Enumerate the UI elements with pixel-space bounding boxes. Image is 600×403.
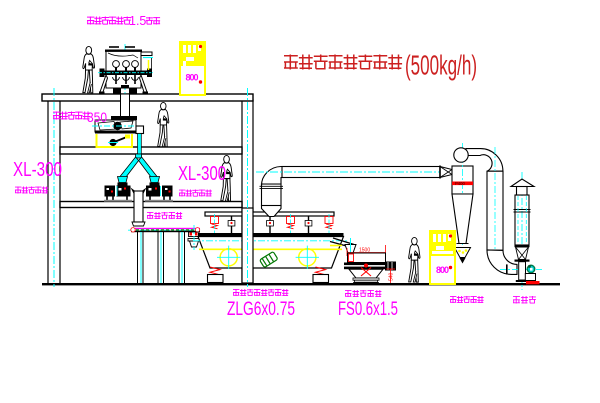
svg-text:FS0.6x1.5: FS0.6x1.5 [338,299,398,320]
svg-text:350: 350 [87,110,107,125]
svg-text:P400: P400 [455,181,465,186]
svg-text:XL-300: XL-300 [13,159,62,181]
svg-text:XL-300: XL-300 [178,163,226,185]
svg-text:800: 800 [436,265,449,275]
svg-text:ZLG6x0.75: ZLG6x0.75 [227,299,295,320]
svg-text:(500kg/h): (500kg/h) [405,50,477,81]
svg-text:540: 540 [389,272,395,281]
svg-text:800: 800 [186,73,199,83]
svg-text:1.5: 1.5 [129,14,146,28]
